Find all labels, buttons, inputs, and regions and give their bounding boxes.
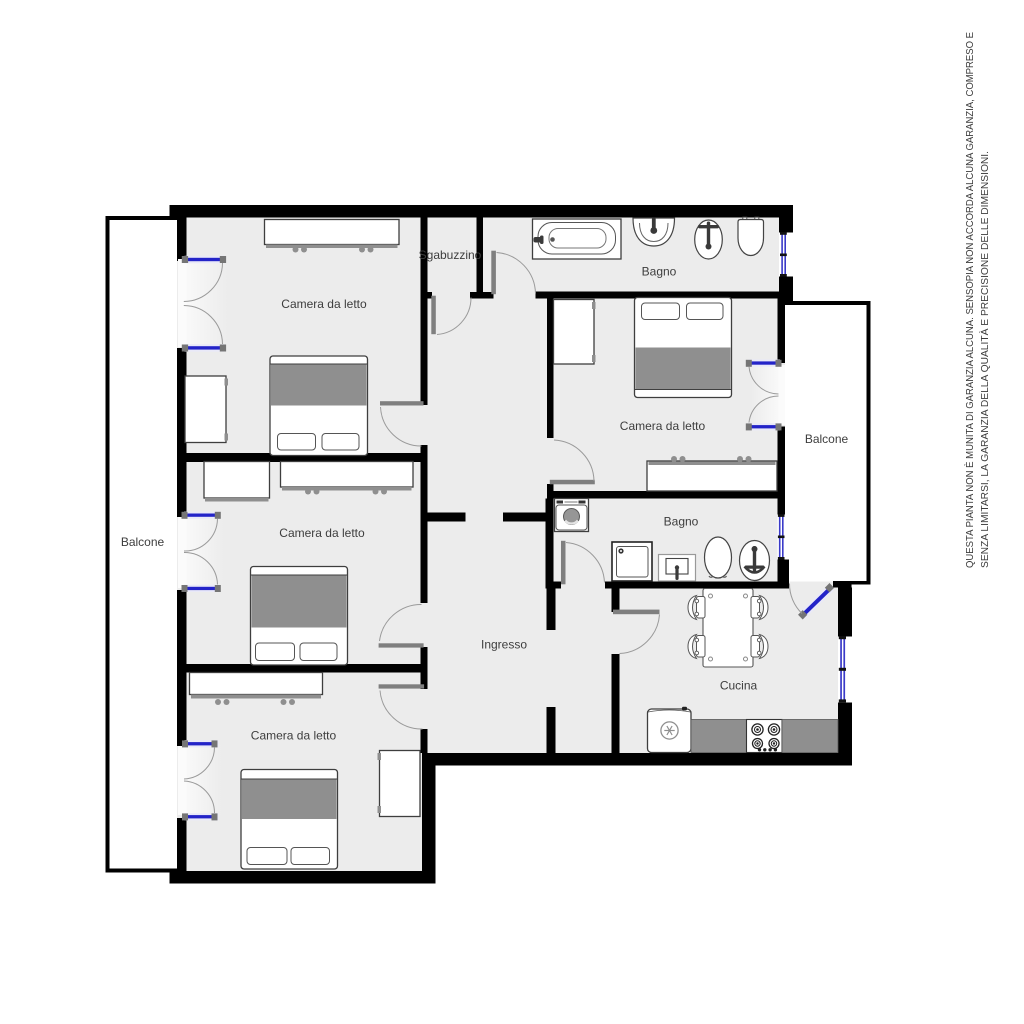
svg-text:Ingresso: Ingresso <box>481 638 527 652</box>
svg-text:Bagno: Bagno <box>664 515 699 529</box>
svg-text:Balcone: Balcone <box>805 432 849 446</box>
svg-text:Cucina: Cucina <box>720 679 758 693</box>
svg-text:Bagno: Bagno <box>642 265 677 279</box>
svg-text:SENZA LIMITARSI, LA GARANZIA D: SENZA LIMITARSI, LA GARANZIA DELLA QUALI… <box>978 151 991 568</box>
svg-text:Camera da letto: Camera da letto <box>620 419 706 433</box>
svg-text:Balcone: Balcone <box>121 535 165 549</box>
svg-text:Camera da letto: Camera da letto <box>279 526 365 540</box>
svg-text:Camera da letto: Camera da letto <box>251 729 337 743</box>
svg-text:Camera da letto: Camera da letto <box>281 297 367 311</box>
svg-text:Sgabuzzino: Sgabuzzino <box>419 248 482 262</box>
svg-text:QUESTA PIANTA NON È MUNITA DI: QUESTA PIANTA NON È MUNITA DI GARANZIA A… <box>963 32 976 568</box>
